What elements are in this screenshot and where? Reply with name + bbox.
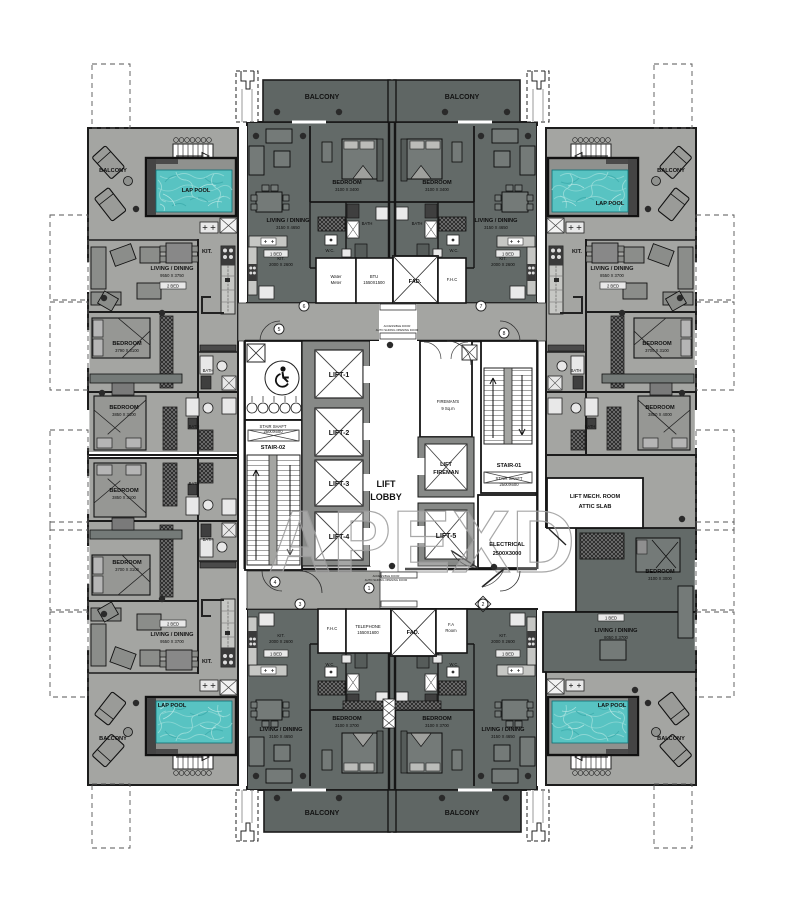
svg-text:BEDROOM: BEDROOM <box>422 716 452 722</box>
svg-text:3790 X 3100: 3790 X 3100 <box>115 348 139 353</box>
svg-text:BALCONY: BALCONY <box>657 736 685 742</box>
svg-text:1 BED: 1 BED <box>605 616 617 621</box>
svg-text:7: 7 <box>480 304 483 310</box>
svg-text:2000 X 2600: 2000 X 2600 <box>269 262 293 267</box>
svg-text:BALCONY: BALCONY <box>305 810 340 817</box>
svg-text:BEDROOM: BEDROOM <box>645 569 675 575</box>
svg-text:KIT.: KIT. <box>572 249 582 255</box>
svg-text:3100 X 3700: 3100 X 3700 <box>425 723 449 728</box>
svg-text:W.C.: W.C. <box>325 248 334 253</box>
svg-text:9550 X 3750: 9550 X 3750 <box>160 273 184 278</box>
svg-text:3700 X 3100: 3700 X 3100 <box>645 348 669 353</box>
svg-text:LAP POOL: LAP POOL <box>182 188 211 194</box>
svg-text:Water: Water <box>330 274 342 279</box>
svg-text:STAIR-02: STAIR-02 <box>261 445 285 451</box>
svg-text:BALCONY: BALCONY <box>99 168 127 174</box>
svg-text:W.C.: W.C. <box>449 248 458 253</box>
svg-text:FAD.: FAD. <box>407 630 420 636</box>
svg-text:1: 1 <box>368 586 371 592</box>
svg-text:BATH: BATH <box>412 221 423 226</box>
svg-text:BEDROOM: BEDROOM <box>332 716 362 722</box>
svg-text:LIFT-4: LIFT-4 <box>329 534 350 541</box>
svg-text:BEDROOM: BEDROOM <box>112 560 142 566</box>
svg-text:LIVING / DINING: LIVING / DINING <box>151 632 194 638</box>
svg-text:LIVING / DINING: LIVING / DINING <box>475 218 518 224</box>
svg-text:3150 X 4650: 3150 X 4650 <box>484 225 508 230</box>
svg-text:LIFT-3: LIFT-3 <box>329 481 350 488</box>
svg-text:2 BED: 2 BED <box>167 284 179 289</box>
svg-text:Room: Room <box>445 628 457 633</box>
svg-text:8: 8 <box>503 331 506 337</box>
svg-text:LIVING / DINING: LIVING / DINING <box>267 218 310 224</box>
svg-text:BATH: BATH <box>571 368 582 373</box>
svg-text:KIT.: KIT. <box>499 256 506 261</box>
svg-text:3100 X 3400: 3100 X 3400 <box>425 187 449 192</box>
svg-text:BEDROOM: BEDROOM <box>642 341 672 347</box>
svg-text:Meter: Meter <box>331 280 342 285</box>
svg-text:LIVING / DINING: LIVING / DINING <box>151 266 194 272</box>
svg-text:2 BED: 2 BED <box>607 284 619 289</box>
svg-text:BALCONY: BALCONY <box>445 810 480 817</box>
svg-text:6: 6 <box>303 304 306 310</box>
svg-text:F.A: F.A <box>448 622 454 627</box>
svg-text:3850 X 3100: 3850 X 3100 <box>112 495 136 500</box>
svg-text:BALCONY: BALCONY <box>445 94 480 101</box>
svg-text:2500X600: 2500X600 <box>263 429 283 434</box>
svg-text:AUTO SLIDING OPENING DOOR: AUTO SLIDING OPENING DOOR <box>376 328 419 332</box>
svg-text:LIFT MECH. ROOM: LIFT MECH. ROOM <box>570 494 621 500</box>
svg-text:2500X3000: 2500X3000 <box>493 551 522 557</box>
svg-text:TELEPHONE: TELEPHONE <box>355 624 381 629</box>
svg-text:4: 4 <box>274 580 277 586</box>
svg-text:LIFT: LIFT <box>377 479 396 489</box>
svg-text:3150 X 4650: 3150 X 4650 <box>276 225 300 230</box>
svg-text:KIT.: KIT. <box>202 249 212 255</box>
svg-text:ATTIC SLAB: ATTIC SLAB <box>579 504 612 510</box>
svg-text:BEDROOM: BEDROOM <box>112 341 142 347</box>
svg-text:KIT.: KIT. <box>499 633 506 638</box>
svg-text:3100 X 3000: 3100 X 3000 <box>648 576 672 581</box>
svg-text:3700 X 3100: 3700 X 3100 <box>115 567 139 572</box>
svg-text:3100 X 3400: 3100 X 3400 <box>335 187 359 192</box>
svg-text:BATH: BATH <box>362 221 373 226</box>
svg-text:LIFT-1: LIFT-1 <box>329 372 350 379</box>
svg-text:LIFT-2: LIFT-2 <box>329 430 350 437</box>
svg-text:BEDROOM: BEDROOM <box>332 180 362 186</box>
svg-text:STAIR SHAFT: STAIR SHAFT <box>496 476 523 481</box>
svg-text:LAP POOL: LAP POOL <box>158 703 187 709</box>
svg-text:BATH: BATH <box>189 481 200 486</box>
svg-text:KIT.: KIT. <box>202 659 212 665</box>
svg-text:KIT.: KIT. <box>277 633 284 638</box>
svg-text:2: 2 <box>482 602 485 608</box>
svg-text:8050 X 3700: 8050 X 3700 <box>604 635 628 640</box>
svg-text:BALCONY: BALCONY <box>657 168 685 174</box>
svg-text:F.H.C: F.H.C <box>447 277 457 282</box>
svg-text:F.H.C: F.H.C <box>327 626 337 631</box>
svg-text:BALCONY: BALCONY <box>305 94 340 101</box>
svg-text:BATH: BATH <box>203 537 214 542</box>
svg-text:FIREMAN'S: FIREMAN'S <box>437 399 460 404</box>
svg-text:9550 X 3700: 9550 X 3700 <box>160 639 184 644</box>
svg-text:BTU: BTU <box>370 274 378 279</box>
svg-text:3150 X 4650: 3150 X 4650 <box>269 734 293 739</box>
svg-text:ELECTRICAL: ELECTRICAL <box>489 542 525 548</box>
svg-text:LIVING / DINING: LIVING / DINING <box>260 727 303 733</box>
svg-text:W.C.: W.C. <box>325 662 334 667</box>
svg-text:3100 X 3700: 3100 X 3700 <box>335 723 359 728</box>
svg-text:2 BED: 2 BED <box>167 622 179 627</box>
svg-text:9 Sq.m: 9 Sq.m <box>441 406 455 411</box>
svg-text:BEDROOM: BEDROOM <box>422 180 452 186</box>
svg-text:LOBBY: LOBBY <box>370 492 402 502</box>
svg-text:BEDROOM: BEDROOM <box>109 488 139 494</box>
svg-text:1 BED: 1 BED <box>502 652 514 657</box>
svg-text:3850 X 3100: 3850 X 3100 <box>112 412 136 417</box>
svg-text:BEDROOM: BEDROOM <box>645 405 675 411</box>
svg-text:LIVING / DINING: LIVING / DINING <box>595 628 638 634</box>
svg-text:STAIR-01: STAIR-01 <box>497 463 521 469</box>
svg-text:LIFT: LIFT <box>440 462 452 468</box>
svg-text:2000 X 2600: 2000 X 2600 <box>491 639 515 644</box>
svg-text:BATH: BATH <box>189 424 200 429</box>
svg-text:2500X600: 2500X600 <box>499 482 519 487</box>
svg-text:LIFT-5: LIFT-5 <box>436 533 457 540</box>
svg-text:8550 X 3700: 8550 X 3700 <box>600 273 624 278</box>
svg-text:LIVING / DINING: LIVING / DINING <box>482 727 525 733</box>
svg-text:3150 X 4650: 3150 X 4650 <box>491 734 515 739</box>
svg-text:LIVING / DINING: LIVING / DINING <box>591 266 634 272</box>
svg-text:LAP POOL: LAP POOL <box>596 201 625 207</box>
svg-text:BEDROOM: BEDROOM <box>109 405 139 411</box>
svg-text:5: 5 <box>278 327 281 333</box>
svg-text:BATH: BATH <box>585 424 596 429</box>
svg-text:AUTO SLIDING OPENING DOOR: AUTO SLIDING OPENING DOOR <box>365 578 408 582</box>
svg-text:3850 X 4000: 3850 X 4000 <box>648 412 672 417</box>
svg-text:FAD.: FAD. <box>409 279 422 285</box>
svg-text:FIREMAN: FIREMAN <box>433 470 458 476</box>
svg-text:3: 3 <box>299 602 302 608</box>
svg-text:2000 X 2600: 2000 X 2600 <box>269 639 293 644</box>
svg-text:1 BED: 1 BED <box>270 652 282 657</box>
svg-text:2000 X 2600: 2000 X 2600 <box>491 262 515 267</box>
svg-text:BATH: BATH <box>203 368 214 373</box>
svg-text:1550X1500: 1550X1500 <box>363 280 385 285</box>
svg-text:1550X1600: 1550X1600 <box>357 630 379 635</box>
svg-text:W.C.: W.C. <box>449 662 458 667</box>
svg-text:LAP POOL: LAP POOL <box>598 703 627 709</box>
svg-text:BALCONY: BALCONY <box>99 736 127 742</box>
svg-text:KIT.: KIT. <box>277 256 284 261</box>
